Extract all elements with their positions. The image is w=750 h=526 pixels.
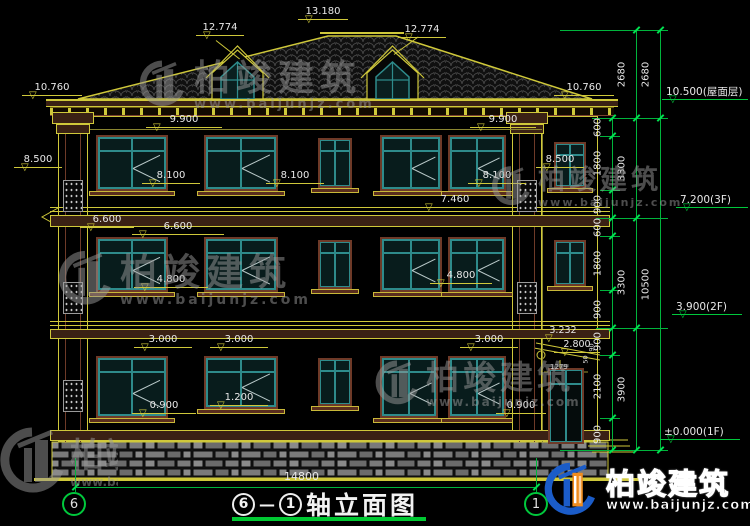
level-label-eave-right: 10.760▽ <box>554 82 614 96</box>
dim-value: 900 <box>592 320 605 364</box>
window <box>380 135 442 191</box>
level-triangle-icon: ▽ <box>139 409 147 419</box>
level-label-w2-sill: 4.800▽ <box>134 274 208 288</box>
window <box>380 356 438 418</box>
dim-chain-line <box>660 30 661 450</box>
dim-value: 1800 <box>592 242 605 286</box>
level-triangle-icon: ▽ <box>203 31 211 41</box>
dim-value: 1800 <box>592 142 605 186</box>
dim-value: 2680 <box>640 53 653 97</box>
level-label-w3-head: 9.900▽ <box>470 114 536 128</box>
window-narrow <box>554 240 586 286</box>
dim-value: 3300 <box>616 147 629 191</box>
pilaster-vent <box>517 180 537 212</box>
level-label-cap-left: 8.500▽ <box>14 154 62 168</box>
level-triangle-icon: ▽ <box>153 123 161 133</box>
level-triangle-icon: ▽ <box>305 15 313 25</box>
pilaster-left-capital <box>52 112 94 124</box>
elevation-drawing-canvas: 13.180▽ 12.774▽ 12.774▽ 10.760▽ 10.760▽ … <box>0 0 750 526</box>
pilaster-vent <box>517 282 537 314</box>
dim-value: 2100 <box>592 365 605 409</box>
level-label-w1-sill: 1.200▽ <box>210 392 268 406</box>
level-label-w1-head: 3.000▽ <box>460 334 518 348</box>
level-label-3f: 7.200(3F)▽ <box>676 194 748 208</box>
dim-value: 3900 <box>616 368 629 412</box>
level-triangle-icon: ▽ <box>477 123 485 133</box>
level-triangle-icon: ▽ <box>545 334 553 344</box>
pilaster-vent <box>63 380 83 412</box>
level-triangle-icon: ▽ <box>87 223 95 233</box>
brand-name: 柏竣建筑 <box>606 470 750 499</box>
level-label-roof: 10.500(屋面层)▽ <box>662 86 748 100</box>
window <box>204 237 278 292</box>
level-label-canopy-top: 3.232▽ <box>538 325 588 339</box>
pilaster-vent <box>63 180 83 212</box>
brand-logo-icon <box>538 460 602 524</box>
base-band <box>50 430 610 441</box>
level-triangle-icon: ▽ <box>543 163 551 173</box>
axis-bubble-6: 6 <box>62 492 86 516</box>
extension-line <box>596 218 668 219</box>
level-label-w3-head: 9.900▽ <box>146 114 222 128</box>
title-dash: — <box>259 495 275 514</box>
level-label-w3-sill: 8.100▽ <box>142 170 200 184</box>
dim-value: 10500 <box>640 260 653 310</box>
level-triangle-icon: ▽ <box>503 409 511 419</box>
level-triangle-icon: ▽ <box>679 310 687 320</box>
belt-line <box>50 325 610 326</box>
level-label-eave-left: 10.760▽ <box>22 82 82 96</box>
level-label-1f: ±0.000(1F)▽ <box>660 426 740 440</box>
level-triangle-icon: ▽ <box>141 283 149 293</box>
side-door <box>548 368 584 444</box>
level-triangle-icon: ▽ <box>139 230 147 240</box>
hip-roof <box>78 36 592 99</box>
level-triangle-icon: ▽ <box>425 203 433 213</box>
extension-line <box>560 450 668 451</box>
level-label-w2-head: 6.600▽ <box>80 214 134 228</box>
level-triangle-icon: ▽ <box>667 435 675 445</box>
extension-line <box>596 328 668 329</box>
level-triangle-icon: ▽ <box>149 179 157 189</box>
level-triangle-icon: ▽ <box>141 343 149 353</box>
small-dim: 50 <box>583 355 590 363</box>
belt-line <box>50 321 610 322</box>
window-narrow <box>318 240 352 289</box>
title-underline <box>232 517 426 521</box>
level-label-belt: 7.460▽ <box>418 194 492 208</box>
level-label-dormer-right: 12.774▽ <box>398 24 446 38</box>
dim-value: 900 <box>592 413 605 457</box>
pilaster-left-capital-step <box>56 124 90 134</box>
level-triangle-icon: ▽ <box>21 163 29 173</box>
level-label-w1-sill: 0.900▽ <box>496 400 546 414</box>
level-triangle-icon: ▽ <box>561 91 569 101</box>
pilaster-vent <box>63 282 83 314</box>
dim-value: 2680 <box>616 53 629 97</box>
total-width-dim: 14800 <box>284 470 319 483</box>
level-label-w1-sill: 0.900▽ <box>132 400 196 414</box>
level-triangle-icon: ▽ <box>561 348 569 358</box>
dim-chain-line <box>612 118 613 450</box>
level-label-w2-sill: 4.800▽ <box>430 270 492 284</box>
level-label-w3-sill: 8.100▽ <box>468 170 526 184</box>
level-label-w2-head: 6.600▽ <box>132 221 224 235</box>
level-label-2f: 3.900(2F)▽ <box>672 301 742 315</box>
brand-url: www.baijunjz.com <box>606 499 750 513</box>
level-label-w1-head: 3.000▽ <box>134 334 192 348</box>
dim-chain-line <box>636 30 637 450</box>
title-axis-bubble: 6 <box>232 493 255 516</box>
level-triangle-icon: ▽ <box>475 179 483 189</box>
window-narrow <box>318 358 352 406</box>
level-triangle-icon: ▽ <box>683 203 691 213</box>
level-triangle-icon: ▽ <box>467 343 475 353</box>
level-label-dormer-left: 12.774▽ <box>196 22 244 36</box>
level-triangle-icon: ▽ <box>217 343 225 353</box>
level-triangle-icon: ▽ <box>29 91 37 101</box>
stone-plinth <box>52 442 608 478</box>
level-triangle-icon: ▽ <box>437 279 445 289</box>
level-label-w1-head: 3.000▽ <box>210 334 268 348</box>
dim-value: 3300 <box>616 261 629 305</box>
level-label-ridge: 13.180▽ <box>298 6 348 20</box>
title-axis-bubble: 1 <box>279 493 302 516</box>
level-label-cap-right: 8.500▽ <box>536 154 584 168</box>
level-triangle-icon: ▽ <box>669 95 677 105</box>
canopy-width-dim: 1279 <box>550 364 568 371</box>
level-triangle-icon: ▽ <box>273 179 281 189</box>
brand-logo: 柏竣建筑 www.baijunjz.com <box>538 460 750 524</box>
eave-cornice <box>46 99 618 107</box>
level-label-w3-sill: 8.100▽ <box>266 170 324 184</box>
extension-line <box>560 30 668 31</box>
level-triangle-icon: ▽ <box>217 401 225 411</box>
